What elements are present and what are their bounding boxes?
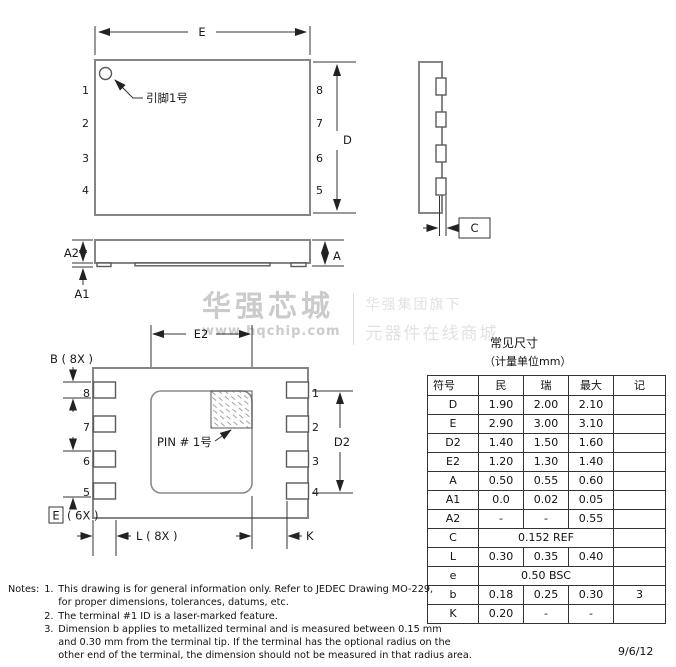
table-cell <box>614 548 666 567</box>
notes-items: 1.This drawing is for general informatio… <box>44 583 472 663</box>
package-drawing-page: 华强芯城 www.hqchip.com 华强集团旗下 元器件在线商城 E <box>0 0 676 667</box>
top-pin-3: 3 <box>82 152 89 165</box>
pad-3 <box>287 451 309 467</box>
dim-label-e-boxed: E <box>52 509 59 523</box>
dimension-table-head: 符号民瑞最大记 <box>428 376 666 396</box>
table-row: A0.500.550.60 <box>428 472 666 491</box>
table-row: A10.00.020.05 <box>428 491 666 510</box>
dim-label-d2: D2 <box>334 435 350 449</box>
table-cell: 0.50 BSC <box>479 567 614 586</box>
end-terminal <box>436 145 446 162</box>
table-cell: 3.10 <box>569 415 614 434</box>
table-cell: D <box>428 396 479 415</box>
table-cell: E <box>428 415 479 434</box>
note-number: 3. <box>44 623 58 663</box>
bottom-pin-1: 1 <box>312 387 319 400</box>
table-cell <box>614 491 666 510</box>
table-cell: D2 <box>428 434 479 453</box>
table-cell: 1.90 <box>479 396 524 415</box>
table-cell: 0.0 <box>479 491 524 510</box>
table-cell: 2.10 <box>569 396 614 415</box>
table-cell: E2 <box>428 453 479 472</box>
table-header-cell: 民 <box>479 376 524 396</box>
dim-label-d: D <box>343 133 352 147</box>
table-cell <box>614 434 666 453</box>
top-pin-6: 6 <box>316 152 323 165</box>
table-title: 常见尺寸 <box>490 334 666 351</box>
notes-label: Notes: <box>8 583 39 663</box>
end-terminal <box>436 112 446 127</box>
bottom-pin-2: 2 <box>312 421 319 434</box>
table-row: E2.903.003.10 <box>428 415 666 434</box>
bottom-pin-7: 7 <box>83 421 90 434</box>
table-cell <box>614 396 666 415</box>
table-cell: - <box>524 510 569 529</box>
table-header-cell: 瑞 <box>524 376 569 396</box>
dim-label-b: B ( 8X ) <box>50 352 93 366</box>
dim-label-l: L ( 8X ) <box>136 529 178 543</box>
bottom-pin-8: 8 <box>83 387 90 400</box>
note-text: This drawing is for general information … <box>58 583 433 610</box>
table-cell: - <box>569 605 614 624</box>
bottom-view: E2 B ( 8X ) 8 7 6 5 1 <box>49 325 353 556</box>
end-terminal <box>436 78 446 95</box>
note-number: 1. <box>44 583 58 610</box>
table-cell: 0.30 <box>569 586 614 605</box>
table-row: E21.201.301.40 <box>428 453 666 472</box>
dim-label-c: C <box>470 221 478 235</box>
pad-5 <box>94 483 116 499</box>
top-pin-5: 5 <box>316 184 323 197</box>
side-foot-left <box>97 263 111 267</box>
side-foot-middle <box>135 263 270 266</box>
pad-8 <box>94 382 116 398</box>
top-view-body <box>95 60 310 215</box>
dim-label-k: K <box>306 529 314 543</box>
table-cell <box>614 529 666 548</box>
table-cell: 1.40 <box>479 434 524 453</box>
drawing-date: 9/6/12 <box>618 645 653 658</box>
dim-label-e-count: ( 6X ) <box>67 509 98 523</box>
bottom-pin-5: 5 <box>83 486 90 499</box>
pad-7 <box>94 416 116 432</box>
note-number: 2. <box>44 610 58 623</box>
side-view: A2 A1 A <box>64 240 344 301</box>
table-cell: 0.30 <box>479 548 524 567</box>
bottom-pin-6: 6 <box>83 455 90 468</box>
pin1-hatch-mark <box>211 391 252 428</box>
side-view-body <box>95 240 310 263</box>
table-cell: 1.50 <box>524 434 569 453</box>
table-cell: 0.50 <box>479 472 524 491</box>
table-cell: 1.60 <box>569 434 614 453</box>
table-cell: 0.60 <box>569 472 614 491</box>
table-row: D1.902.002.10 <box>428 396 666 415</box>
note-item: 2.The terminal #1 ID is a laser-marked f… <box>44 610 472 623</box>
note-text: Dimension b applies to metallized termin… <box>58 623 472 663</box>
table-cell <box>614 472 666 491</box>
pin1-label: 引脚1号 <box>146 91 188 105</box>
table-cell: C <box>428 529 479 548</box>
table-cell: 2.00 <box>524 396 569 415</box>
note-text: The terminal #1 ID is a laser-marked fea… <box>58 610 278 623</box>
note-item: 1.This drawing is for general informatio… <box>44 583 472 610</box>
end-view: C <box>419 62 490 238</box>
pad-6 <box>94 451 116 467</box>
table-header-cell: 符号 <box>428 376 479 396</box>
table-cell: 0.152 REF <box>479 529 614 548</box>
dim-label-a: A <box>333 249 341 263</box>
table-row: D21.401.501.60 <box>428 434 666 453</box>
table-cell: 0.55 <box>569 510 614 529</box>
top-view: E 引脚1号 1 2 3 4 8 7 6 5 D <box>82 25 356 215</box>
table-cell: A <box>428 472 479 491</box>
table-cell: 0.05 <box>569 491 614 510</box>
pad-4 <box>287 483 309 499</box>
note-item: 3.Dimension b applies to metallized term… <box>44 623 472 663</box>
top-pin-7: 7 <box>316 117 323 130</box>
pin1-index-mark <box>100 68 112 80</box>
table-cell <box>614 415 666 434</box>
table-cell <box>614 453 666 472</box>
dim-label-e2: E2 <box>194 327 209 341</box>
notes-section: Notes: 1.This drawing is for general inf… <box>8 583 472 663</box>
table-cell: 0.20 <box>479 605 524 624</box>
table-unit: （计量单位mm） <box>484 353 666 369</box>
pad-2 <box>287 416 309 432</box>
table-header-cell: 最大 <box>569 376 614 396</box>
table-cell: A2 <box>428 510 479 529</box>
table-cell: 1.40 <box>569 453 614 472</box>
table-cell: 3 <box>614 586 666 605</box>
table-cell: L <box>428 548 479 567</box>
table-header-cell: 记 <box>614 376 666 396</box>
bottom-pin1-label: PIN # 1号 <box>157 435 212 449</box>
top-pin-4: 4 <box>82 184 89 197</box>
table-cell: 0.40 <box>569 548 614 567</box>
top-pin-8: 8 <box>316 84 323 97</box>
table-cell: A1 <box>428 491 479 510</box>
pad-1 <box>287 382 309 398</box>
table-cell: 3.00 <box>524 415 569 434</box>
table-row: A2--0.55 <box>428 510 666 529</box>
table-cell <box>614 510 666 529</box>
table-cell: 1.30 <box>524 453 569 472</box>
table-cell: 0.35 <box>524 548 569 567</box>
dim-label-e: E <box>198 25 205 39</box>
table-row: L0.300.350.40 <box>428 548 666 567</box>
table-cell <box>614 567 666 586</box>
dim-label-a2: A2 <box>64 246 79 260</box>
bottom-pin-3: 3 <box>312 455 319 468</box>
table-cell: 0.55 <box>524 472 569 491</box>
top-pin-2: 2 <box>82 117 89 130</box>
table-cell: 0.25 <box>524 586 569 605</box>
table-cell: - <box>524 605 569 624</box>
table-cell: 0.18 <box>479 586 524 605</box>
table-cell: 2.90 <box>479 415 524 434</box>
table-header-row: 符号民瑞最大记 <box>428 376 666 396</box>
dim-label-a1: A1 <box>74 287 89 301</box>
table-cell: - <box>479 510 524 529</box>
top-pin-1: 1 <box>82 84 89 97</box>
table-row: C0.152 REF <box>428 529 666 548</box>
end-terminal <box>436 178 446 195</box>
table-cell: 0.02 <box>524 491 569 510</box>
dimension-table-section: 常见尺寸 （计量单位mm） 符号民瑞最大记 D1.902.002.10E2.90… <box>427 334 666 624</box>
table-cell: 1.20 <box>479 453 524 472</box>
side-foot-right <box>291 263 306 267</box>
table-cell <box>614 605 666 624</box>
